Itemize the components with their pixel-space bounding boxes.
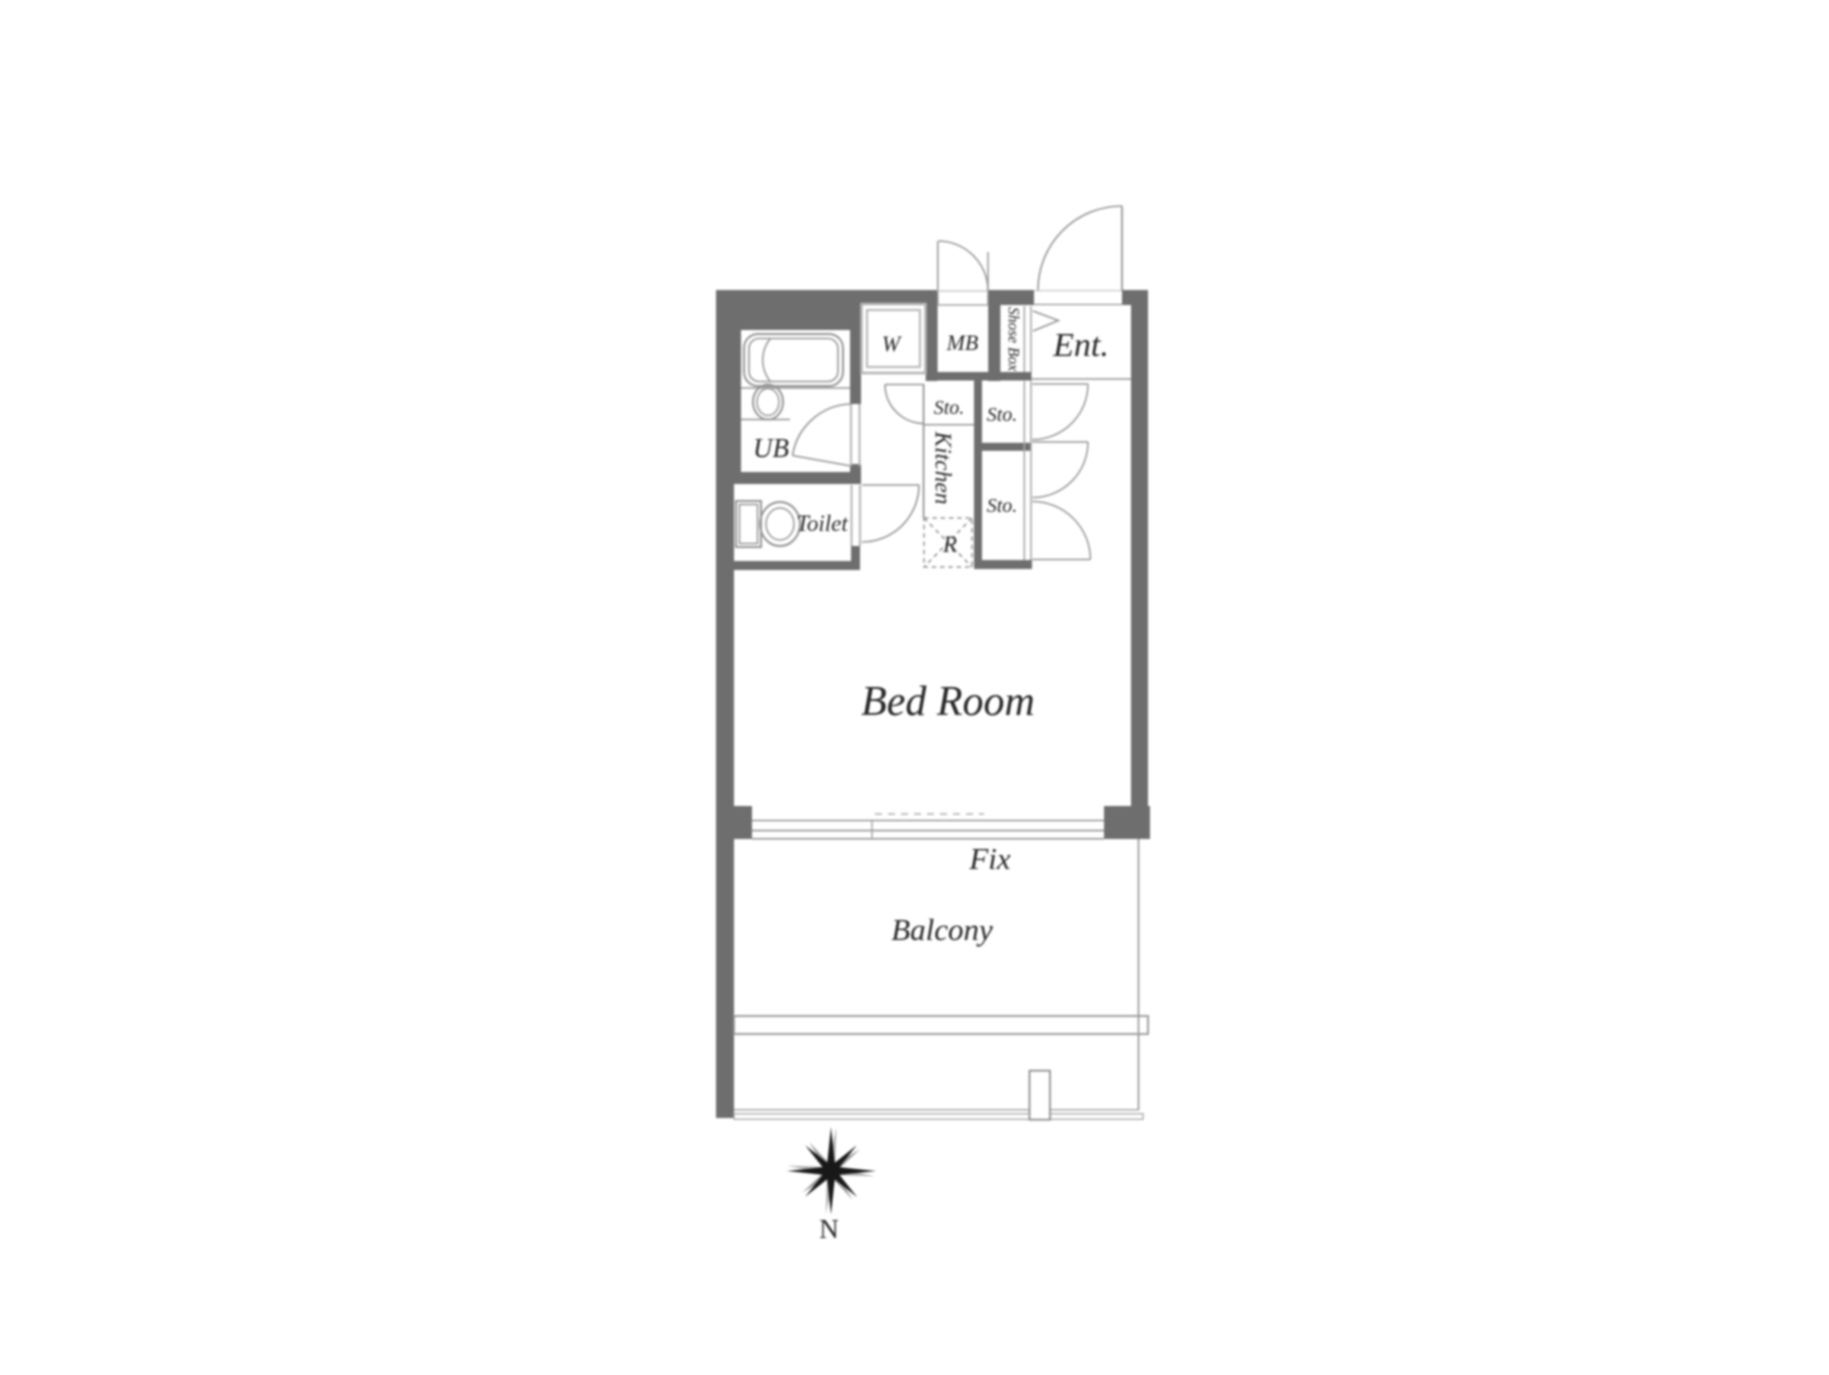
svg-text:Bed Room: Bed Room	[861, 679, 1035, 725]
svg-text:UB: UB	[753, 433, 789, 463]
svg-text:Sto.: Sto.	[987, 404, 1018, 426]
svg-text:Sto.: Sto.	[987, 495, 1018, 517]
svg-text:Toilet: Toilet	[796, 511, 848, 536]
svg-text:W: W	[882, 331, 902, 356]
svg-text:Fix: Fix	[968, 841, 1011, 876]
svg-text:Kitchen: Kitchen	[930, 430, 956, 504]
svg-text:N: N	[819, 1214, 839, 1244]
svg-text:MB: MB	[946, 330, 979, 355]
svg-text:Balcony: Balcony	[891, 912, 993, 947]
svg-text:Ent.: Ent.	[1052, 327, 1109, 364]
svg-text:Shose Box: Shose Box	[1004, 307, 1021, 371]
svg-text:Sto.: Sto.	[934, 397, 965, 419]
svg-text:R: R	[942, 532, 957, 557]
